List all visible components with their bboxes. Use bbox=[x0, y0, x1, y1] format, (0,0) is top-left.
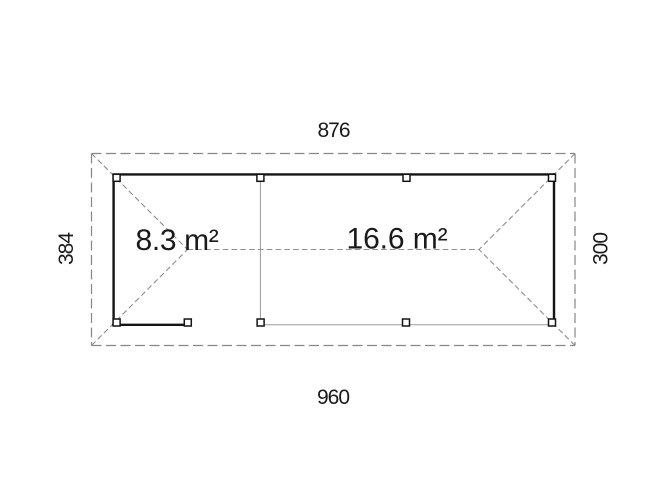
svg-text:8.3 m²: 8.3 m² bbox=[136, 224, 219, 257]
svg-text:16.6 m²: 16.6 m² bbox=[346, 223, 447, 256]
svg-text:300: 300 bbox=[589, 233, 612, 265]
svg-text:384: 384 bbox=[55, 232, 78, 265]
svg-text:876: 876 bbox=[317, 119, 349, 142]
svg-text:960: 960 bbox=[317, 386, 349, 409]
